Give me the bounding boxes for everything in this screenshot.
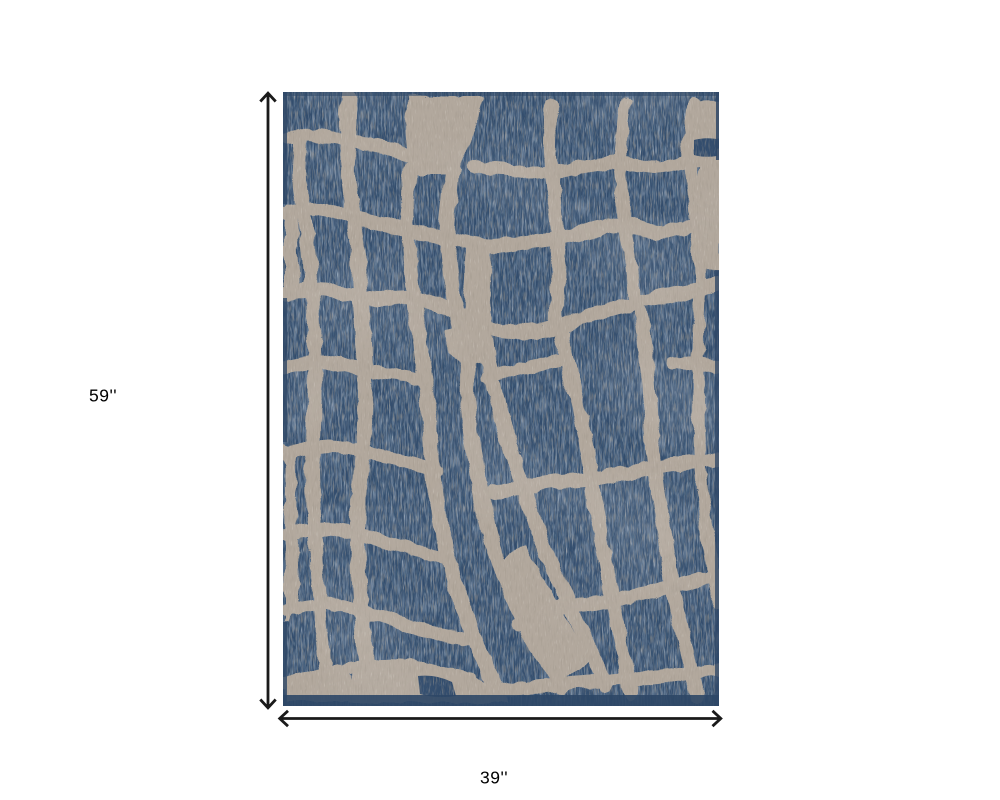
svg-text:39'': 39'' (480, 768, 508, 788)
svg-text:59'': 59'' (89, 386, 117, 406)
